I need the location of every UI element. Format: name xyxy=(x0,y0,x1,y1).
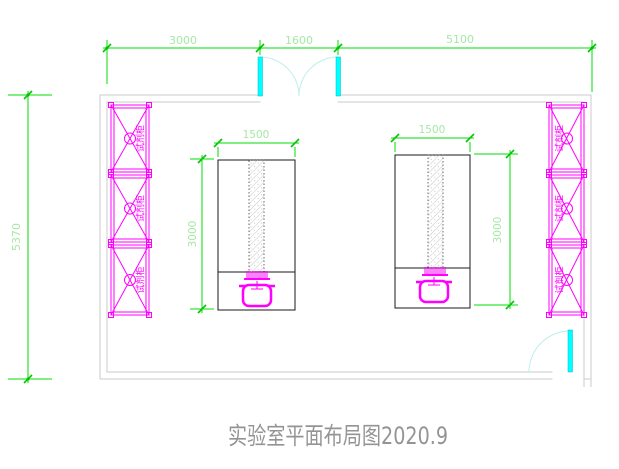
cabinet-label: 试剂柜 xyxy=(135,195,147,222)
cabinet-label: 试剂柜 xyxy=(554,125,566,152)
dim-bench-depth: 3000 xyxy=(492,217,504,244)
dim-bench-depth: 3000 xyxy=(187,221,199,248)
fume-device xyxy=(239,271,275,306)
door-leaf xyxy=(568,330,573,372)
lab-bench-right xyxy=(395,155,470,308)
reagent-cabinet: 试剂柜 xyxy=(109,173,152,245)
dim-left-overall: 5370 xyxy=(10,223,23,251)
dim-bench-width: 1500 xyxy=(243,129,270,141)
dimension-top-chain: 3000 1600 5100 xyxy=(103,33,596,92)
dim-top-left: 3000 xyxy=(169,34,197,47)
cabinet-label: 试剂柜 xyxy=(554,266,566,293)
cabinet-column-left: 试剂柜 试剂柜 试剂柜 xyxy=(109,103,152,318)
double-door-top xyxy=(258,57,341,96)
lab-bench-left xyxy=(218,160,295,310)
bench-center-channel xyxy=(249,160,264,272)
room-walls xyxy=(100,93,591,387)
reagent-cabinet: 试剂柜 xyxy=(547,103,587,175)
reagent-cabinet: 试剂柜 xyxy=(547,173,587,245)
fume-device xyxy=(416,267,452,302)
dimension-left-overall: 5370 xyxy=(8,91,52,383)
dimension-right-bench: 1500 3000 xyxy=(391,124,518,309)
bench-center-channel xyxy=(428,155,443,268)
cabinet-column-right: 试剂柜 试剂柜 试剂柜 xyxy=(547,103,587,318)
reagent-cabinet: 试剂柜 xyxy=(109,243,152,318)
door-leaf xyxy=(336,57,341,96)
single-door-bottom-right xyxy=(529,330,573,372)
dim-bench-width: 1500 xyxy=(419,124,446,136)
dim-top-right: 5100 xyxy=(446,33,474,46)
door-swing-arc xyxy=(299,57,338,96)
reagent-cabinet: 试剂柜 xyxy=(109,103,152,175)
door-swing-arc xyxy=(260,57,299,96)
door-swing-arc xyxy=(529,331,570,372)
cabinet-label: 试剂柜 xyxy=(554,195,566,222)
drawing-title: 实验室平面布局图2020.9 xyxy=(228,422,448,450)
floorplan-canvas[interactable]: 3000 1600 5100 5370 试剂柜 xyxy=(0,0,619,469)
reagent-cabinet: 试剂柜 xyxy=(547,243,587,318)
door-leaf xyxy=(258,57,263,96)
dim-top-middle: 1600 xyxy=(285,34,313,47)
cabinet-label: 试剂柜 xyxy=(135,266,147,293)
cabinet-label: 试剂柜 xyxy=(135,125,147,152)
